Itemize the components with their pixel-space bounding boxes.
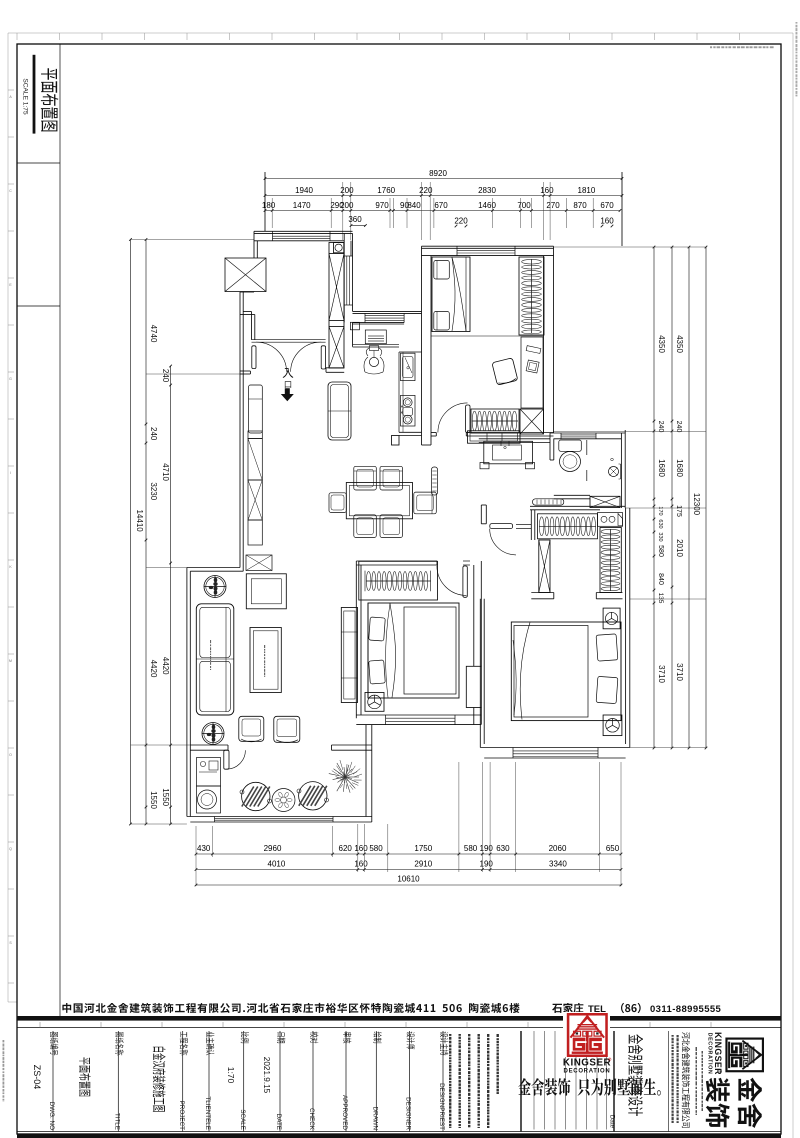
svg-text:580: 580: [657, 545, 664, 557]
svg-text:840: 840: [657, 573, 664, 585]
svg-text:4010: 4010: [268, 860, 286, 869]
svg-text:10610: 10610: [397, 875, 420, 884]
svg-text:1:70: 1:70: [226, 1067, 236, 1084]
svg-text:630: 630: [496, 844, 510, 853]
svg-text:DWG. NO: DWG. NO: [48, 1102, 55, 1130]
svg-text:8920: 8920: [429, 169, 447, 178]
svg-text:TITLE: TITLE: [114, 1113, 121, 1130]
svg-text:1750: 1750: [414, 844, 432, 853]
svg-text:630: 630: [657, 519, 663, 528]
svg-text:2830: 2830: [478, 186, 496, 195]
svg-text:970: 970: [375, 201, 389, 210]
svg-text:270: 270: [546, 201, 560, 210]
svg-text:870: 870: [573, 201, 587, 210]
svg-text:160: 160: [600, 217, 614, 226]
svg-text:3340: 3340: [549, 860, 567, 869]
svg-text:2960: 2960: [264, 844, 282, 853]
svg-text:1460: 1460: [478, 201, 496, 210]
svg-text:1680: 1680: [675, 459, 684, 477]
svg-text:135: 135: [657, 593, 664, 604]
svg-text:O: O: [9, 753, 12, 757]
svg-text:2060: 2060: [549, 844, 567, 853]
svg-text:DATE: DATE: [275, 1114, 282, 1130]
svg-text:4420: 4420: [149, 660, 158, 678]
svg-text:DECORATION: DECORATION: [564, 1069, 611, 1075]
svg-text:PROJECT: PROJECT: [178, 1101, 185, 1131]
svg-text:M: M: [9, 659, 12, 663]
svg-text:200: 200: [340, 201, 354, 210]
svg-text:KINGSER: KINGSER: [563, 1058, 611, 1069]
svg-text:3230: 3230: [149, 482, 158, 500]
svg-text:620: 620: [339, 844, 353, 853]
svg-text:SCALE: SCALE: [239, 1109, 246, 1130]
svg-text:4350: 4350: [657, 335, 666, 353]
svg-text:APPROVED: APPROVED: [341, 1095, 348, 1130]
svg-text:1470: 1470: [293, 201, 311, 210]
svg-text:240: 240: [149, 427, 158, 441]
svg-text:580: 580: [464, 844, 478, 853]
svg-text:190: 190: [480, 860, 494, 869]
svg-text:G: G: [9, 377, 12, 381]
svg-text:1940: 1940: [295, 186, 313, 195]
svg-text:670: 670: [434, 201, 448, 210]
svg-text:2021.9.15: 2021.9.15: [262, 1057, 271, 1094]
svg-text:160: 160: [354, 860, 368, 869]
svg-text:240: 240: [675, 421, 682, 433]
svg-text:700: 700: [517, 201, 531, 210]
svg-text:4710: 4710: [161, 463, 170, 481]
svg-text:240: 240: [657, 421, 664, 433]
svg-text:360: 360: [348, 215, 362, 224]
svg-text:KINGSER: KINGSER: [713, 1032, 723, 1075]
svg-text:DESIGNPRIEST: DESIGNPRIEST: [438, 1083, 445, 1130]
svg-text:1550: 1550: [149, 791, 158, 809]
svg-text:1550: 1550: [161, 788, 170, 806]
svg-text:1680: 1680: [657, 459, 666, 477]
svg-text:DECORATION: DECORATION: [707, 1033, 713, 1075]
svg-text:180: 180: [262, 201, 276, 210]
svg-text:14410: 14410: [135, 509, 144, 532]
svg-text:TLIENTELE: TLIENTELE: [204, 1096, 211, 1130]
svg-text:330: 330: [657, 532, 663, 541]
svg-text:ZS-04: ZS-04: [32, 1065, 42, 1090]
svg-text:430: 430: [197, 844, 211, 853]
svg-text:650: 650: [606, 844, 620, 853]
svg-text:2910: 2910: [414, 860, 432, 869]
svg-text:CHECK: CHECK: [308, 1108, 315, 1131]
svg-text:I: I: [10, 471, 11, 475]
svg-text:®: ®: [718, 1070, 723, 1073]
svg-text:DRAWN: DRAWN: [372, 1106, 379, 1130]
svg-text:1810: 1810: [578, 186, 596, 195]
svg-text:2010: 2010: [675, 539, 684, 557]
svg-text:175: 175: [675, 505, 682, 517]
svg-text:4740: 4740: [149, 325, 158, 343]
svg-text:840: 840: [407, 201, 421, 210]
svg-text:DESIGNER: DESIGNER: [405, 1097, 412, 1130]
svg-text:3710: 3710: [657, 665, 666, 683]
svg-text:160: 160: [540, 186, 554, 195]
svg-text:12300: 12300: [692, 493, 701, 516]
svg-text:670: 670: [600, 201, 614, 210]
svg-text:3710: 3710: [675, 663, 684, 681]
svg-text:160: 160: [354, 844, 368, 853]
svg-text:200: 200: [340, 186, 354, 195]
svg-text:4350: 4350: [675, 335, 684, 353]
svg-text:Q: Q: [9, 847, 12, 851]
svg-text:1760: 1760: [377, 186, 395, 195]
svg-text:0311-88995555: 0311-88995555: [650, 1004, 722, 1015]
svg-text:220: 220: [454, 217, 468, 226]
svg-text:240: 240: [161, 369, 170, 383]
svg-text:SCALE 1:75: SCALE 1:75: [22, 78, 29, 115]
svg-text:190: 190: [480, 844, 494, 853]
svg-text:580: 580: [369, 844, 383, 853]
svg-text:4420: 4420: [161, 657, 170, 675]
